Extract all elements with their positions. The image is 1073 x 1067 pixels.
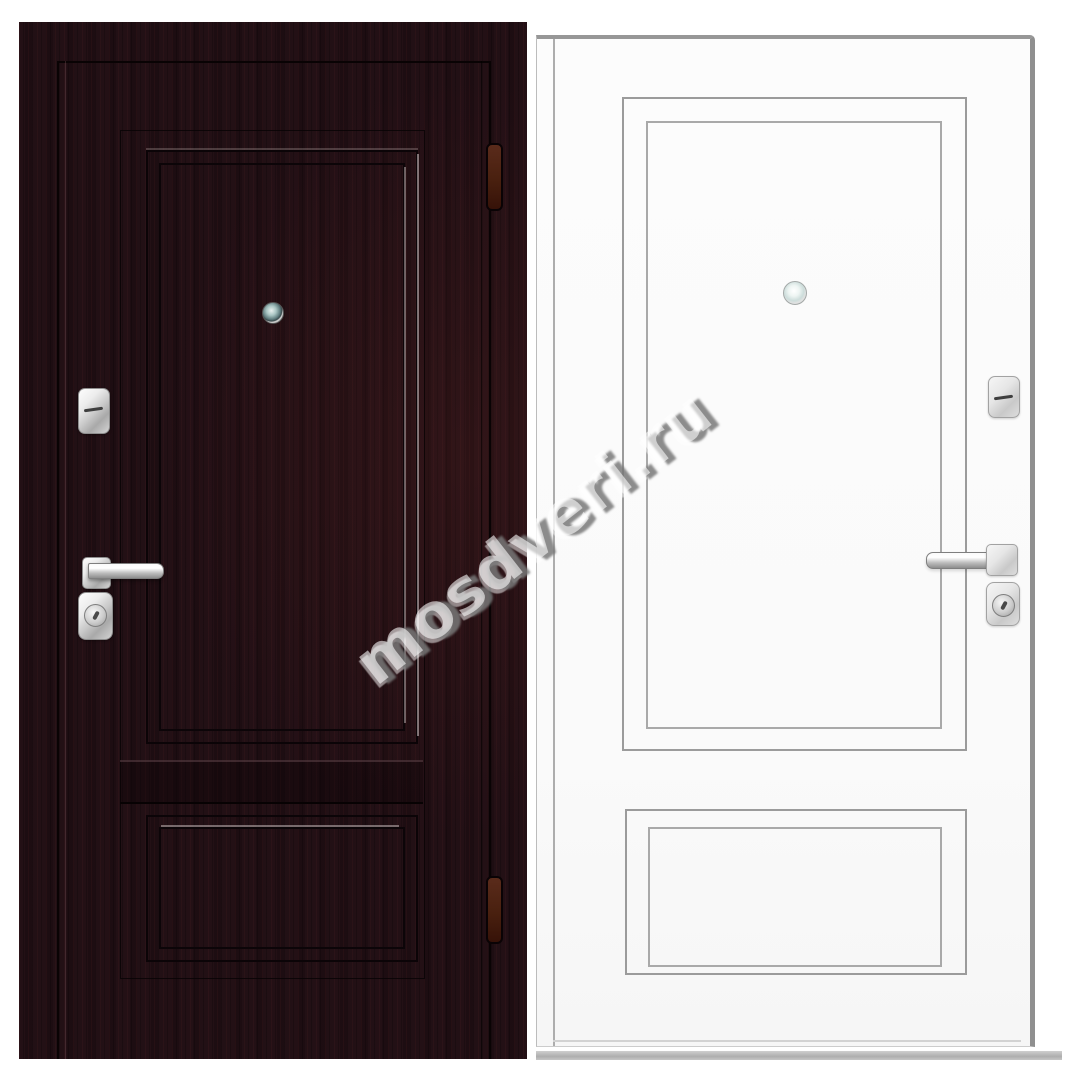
door-exterior-side [19, 22, 527, 1059]
cylinder-lock-escutcheon [986, 582, 1020, 626]
hinge-top [486, 143, 503, 211]
door-product-photo: mosdveri.ru [0, 0, 1073, 1067]
lower-panel-molding-inner [159, 827, 405, 949]
key-cylinder [84, 604, 107, 627]
peephole [262, 302, 284, 324]
flip-lock-escutcheon [988, 376, 1020, 418]
keyhole [1000, 601, 1008, 611]
door-bottom-shadow [536, 1051, 1062, 1060]
flip-lock-escutcheon [78, 388, 110, 434]
door-interior-side [536, 35, 1035, 1047]
cylinder-lock-escutcheon [78, 592, 113, 640]
hinge-bottom [486, 876, 503, 944]
lever-handle [88, 563, 164, 579]
casing-seam-left [57, 61, 59, 1059]
lower-panel-highlight-top [161, 825, 399, 827]
casing-seam-top [58, 61, 490, 63]
middle-rail-recess [120, 760, 423, 804]
lower-panel-molding-inner [648, 827, 942, 967]
thumbturn-slot [84, 407, 103, 413]
peephole [783, 281, 807, 305]
casing-seam-left-highlight [65, 61, 66, 1059]
edge-bevel-bottom [553, 1040, 1021, 1042]
keyhole [92, 611, 100, 621]
handle-rose [986, 544, 1018, 576]
thumbturn-slot [994, 395, 1013, 401]
key-cylinder [992, 594, 1015, 617]
